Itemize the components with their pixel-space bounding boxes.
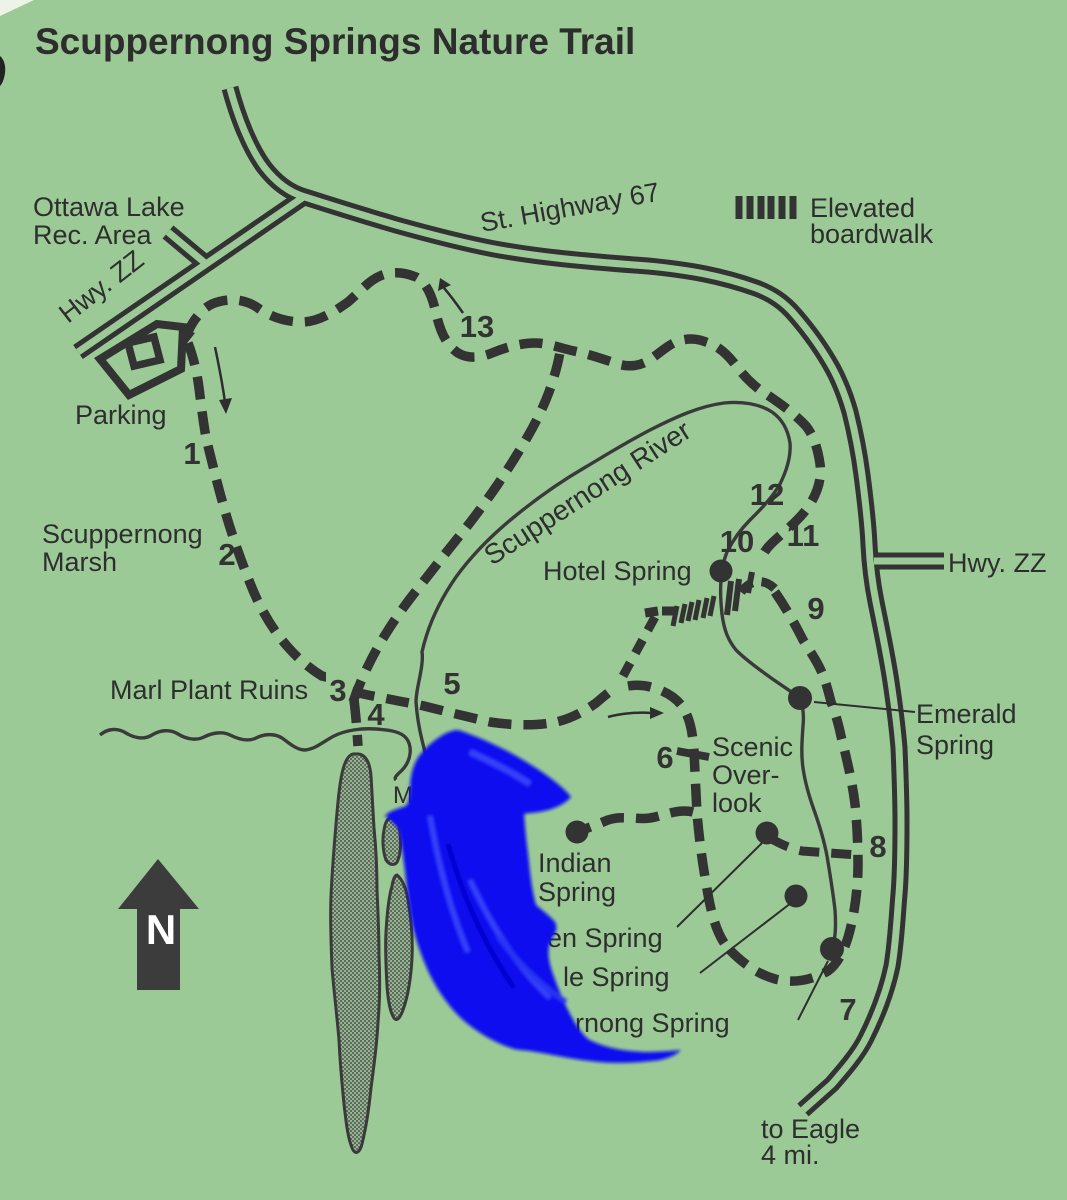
- svg-text:le Spring: le Spring: [563, 962, 670, 992]
- svg-text:4 mi.: 4 mi.: [761, 1140, 820, 1170]
- svg-text:Marsh: Marsh: [42, 547, 117, 577]
- svg-text:boardwalk: boardwalk: [810, 219, 934, 249]
- svg-text:Spring: Spring: [916, 730, 994, 760]
- svg-text:en Spring: en Spring: [547, 923, 663, 953]
- svg-text:Scuppernong Springs Nature Tra: Scuppernong Springs Nature Trail: [35, 21, 635, 62]
- svg-text:6: 6: [656, 740, 673, 775]
- svg-text:1: 1: [183, 436, 200, 471]
- svg-text:Parking: Parking: [75, 400, 167, 430]
- svg-text:12: 12: [750, 477, 784, 512]
- svg-text:Over-: Over-: [712, 760, 780, 790]
- svg-text:10: 10: [720, 524, 754, 559]
- svg-text:4: 4: [367, 697, 385, 732]
- svg-text:Marl Plant Ruins: Marl Plant Ruins: [110, 675, 308, 705]
- svg-text:9: 9: [807, 591, 824, 626]
- svg-text:3: 3: [329, 673, 346, 708]
- svg-text:look: look: [712, 788, 762, 818]
- svg-text:Hwy. ZZ: Hwy. ZZ: [948, 548, 1046, 578]
- svg-text:13: 13: [460, 309, 494, 344]
- svg-text:11: 11: [787, 518, 820, 553]
- svg-text:Scuppernong: Scuppernong: [42, 519, 203, 549]
- svg-text:2: 2: [218, 537, 235, 572]
- svg-text:rnong Spring: rnong Spring: [575, 1008, 730, 1038]
- svg-text:Rec. Area: Rec. Area: [33, 220, 153, 250]
- svg-text:Emerald: Emerald: [916, 699, 1017, 729]
- svg-text:N: N: [146, 906, 176, 953]
- svg-text:7: 7: [839, 992, 856, 1027]
- svg-text:8: 8: [869, 829, 886, 864]
- svg-text:Ottawa Lake: Ottawa Lake: [33, 192, 185, 222]
- svg-text:Indian: Indian: [538, 848, 612, 878]
- svg-text:Hotel Spring: Hotel Spring: [543, 556, 692, 586]
- svg-text:5: 5: [443, 666, 460, 701]
- svg-text:Scenic: Scenic: [712, 732, 793, 762]
- svg-text:Spring: Spring: [538, 877, 616, 907]
